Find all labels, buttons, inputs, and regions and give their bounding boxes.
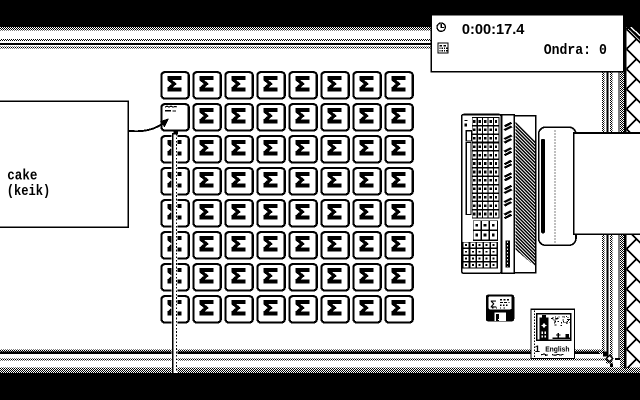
svg-text:Σ: Σ bbox=[490, 298, 496, 310]
svg-text:0:00:17.4: 0:00:17.4 bbox=[462, 22, 525, 38]
svg-text:English: English bbox=[545, 346, 569, 353]
svg-text:1: 1 bbox=[535, 344, 541, 355]
svg-text:(keik): (keik) bbox=[7, 183, 51, 199]
svg-text:Ondra: 0: Ondra: 0 bbox=[544, 42, 607, 59]
